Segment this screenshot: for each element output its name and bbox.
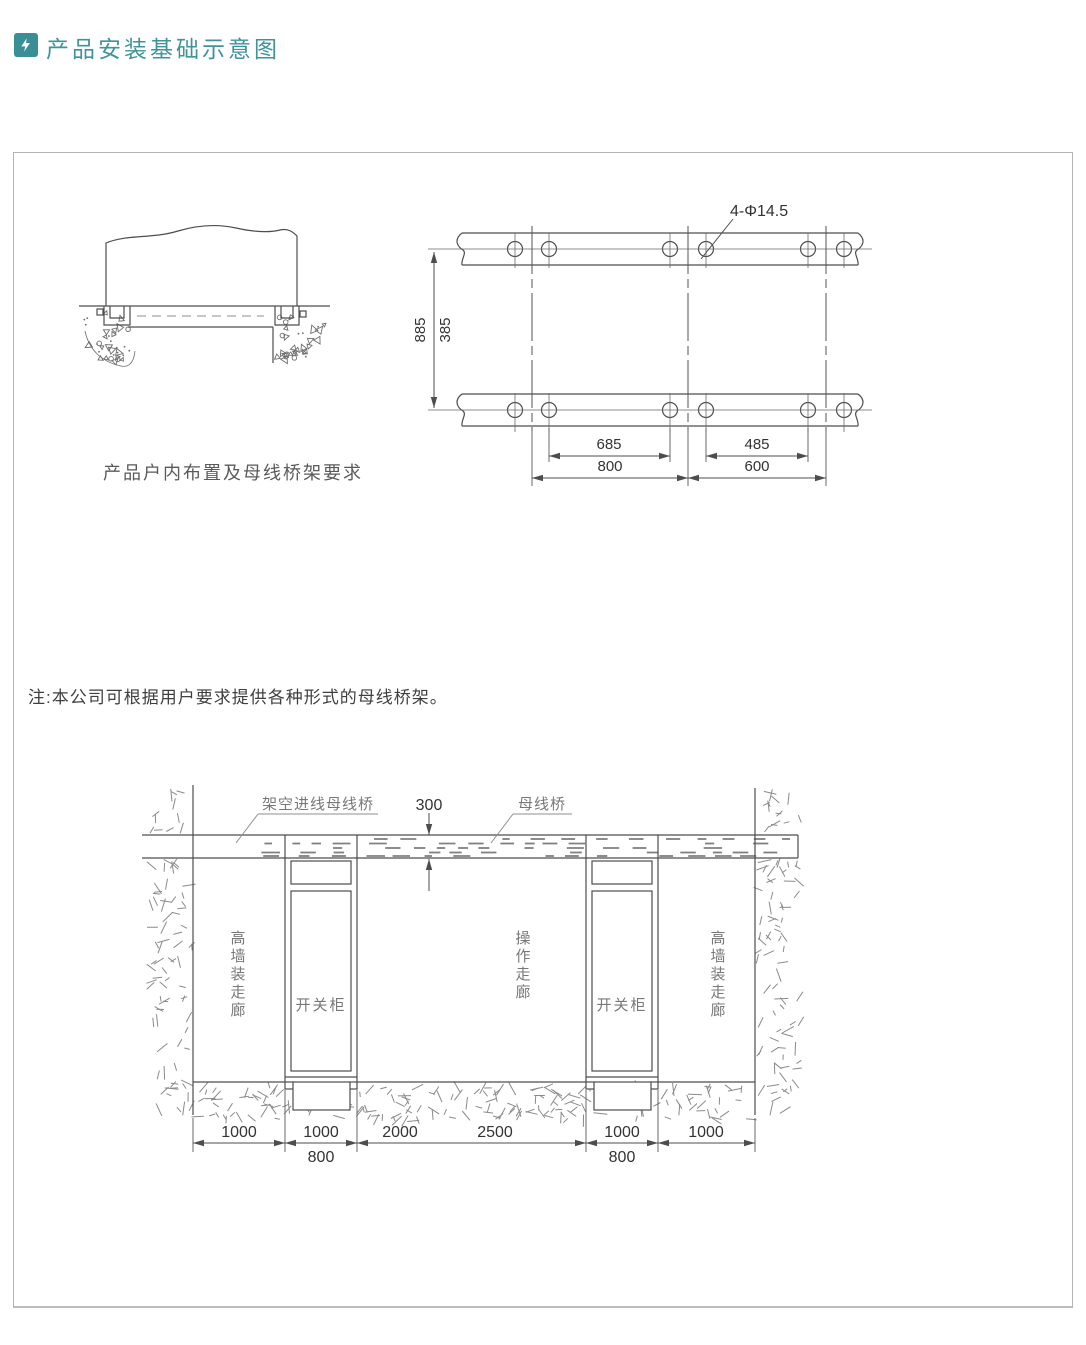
hole-diameter-label: 4-Φ14.5: [730, 203, 788, 220]
svg-text:885: 885: [412, 317, 429, 342]
corridor-center-label: 操作走廊: [514, 930, 531, 1002]
busbar-bridge-label: 母线桥: [491, 796, 572, 843]
svg-text:母线桥: 母线桥: [518, 796, 566, 813]
busbar-frame-plan-view: 4-Φ14.5 885 385 685 800 485 600: [412, 203, 872, 486]
svg-text:685: 685: [596, 436, 621, 453]
hole-center-ticks: [515, 233, 844, 432]
cabinet-right-label: 开关柜: [596, 997, 647, 1014]
installation-section-view: 300 架空进线母线桥 母线桥 开关柜: [142, 785, 804, 1166]
floor-hatch: [192, 1080, 757, 1126]
svg-text:1000: 1000: [221, 1124, 257, 1141]
cabinet-left-label: 开关柜: [295, 997, 346, 1014]
svg-text:800: 800: [308, 1149, 335, 1166]
svg-text:1000: 1000: [303, 1124, 339, 1141]
svg-text:1000: 1000: [604, 1124, 640, 1141]
svg-text:300: 300: [416, 797, 443, 814]
svg-text:485: 485: [744, 436, 769, 453]
plan-caption: 产品户内布置及母线桥架要求: [103, 463, 363, 483]
dim-hole-span-right: 485: [706, 428, 808, 462]
svg-text:架空进线母线桥: 架空进线母线桥: [262, 796, 374, 813]
anchor-tick-left: [97, 309, 103, 315]
cabinet-side-view: 产品户内布置及母线桥架要求: [79, 226, 363, 483]
svg-text:800: 800: [609, 1149, 636, 1166]
svg-text:1000: 1000: [688, 1124, 724, 1141]
section-dimensions: 1000 1000 2000 2500 1000 1000 800 800: [193, 1090, 755, 1166]
dim-rail-spacing: 885 385: [412, 252, 454, 408]
svg-text:2500: 2500: [477, 1124, 513, 1141]
concrete-aggregate-right: [275, 315, 326, 364]
switch-cabinet-right: 开关柜: [586, 835, 658, 1110]
svg-text:600: 600: [744, 458, 769, 475]
catalog-page: { "header": { "title": "产品安装基础示意图" }, "p…: [0, 0, 1086, 1345]
rail-axis-lines: [428, 249, 872, 410]
switch-cabinet-left: 开关柜: [285, 835, 357, 1110]
corridor-right-label: 高墙装走廊: [709, 930, 726, 1020]
concrete-aggregate-left: [83, 311, 130, 365]
svg-text:2000: 2000: [382, 1124, 418, 1141]
cabinet-outline: [106, 226, 297, 306]
technical-drawing: 产品户内布置及母线桥架要求 4-: [0, 0, 1086, 1345]
panel-center-lines: [532, 226, 826, 431]
svg-text:385: 385: [437, 317, 454, 342]
embedded-channel-left: [104, 306, 130, 325]
anchor-tick-right: [300, 311, 306, 317]
svg-text:800: 800: [597, 458, 622, 475]
dim-hole-span-left: 685: [549, 428, 670, 462]
corridor-left-label: 高墙装走廊: [229, 930, 246, 1020]
bolt-holes: [508, 242, 852, 418]
